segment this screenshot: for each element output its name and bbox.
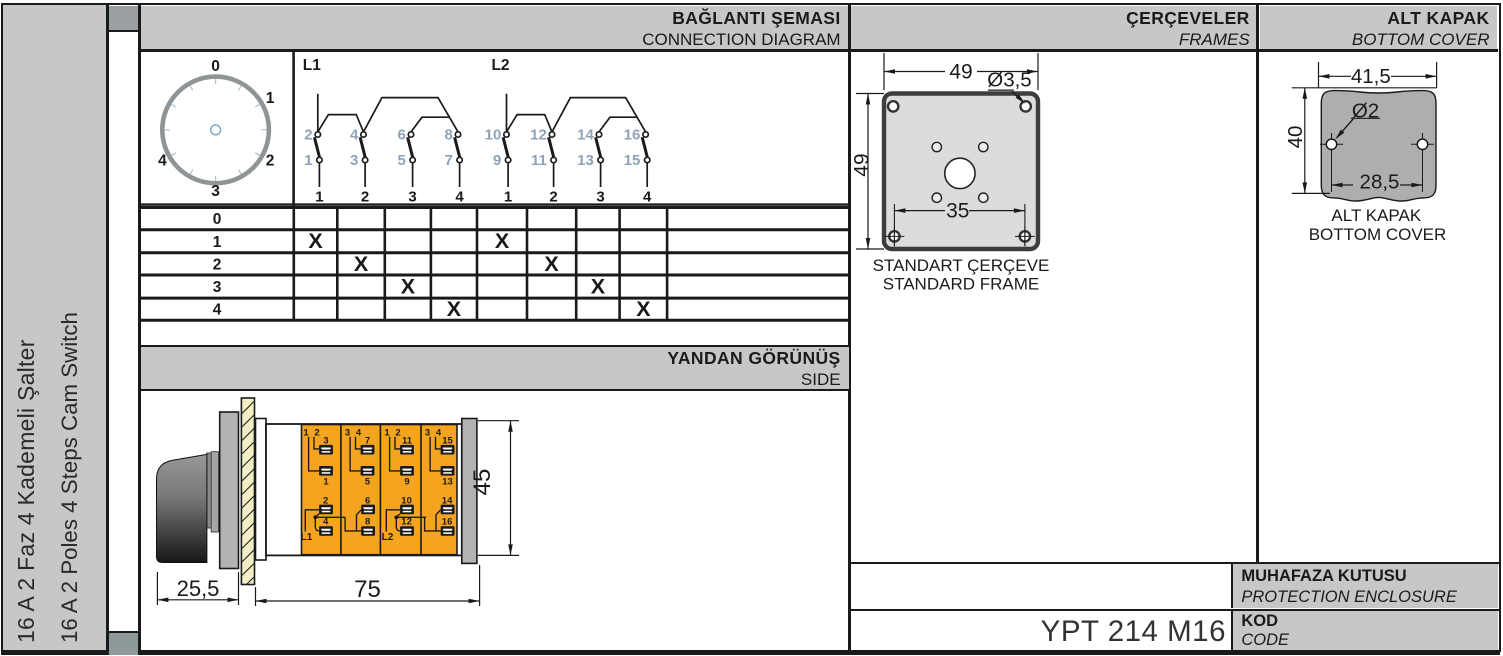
svg-text:Ø2: Ø2 (1352, 100, 1379, 123)
svg-text:16: 16 (442, 517, 453, 528)
svg-text:9: 9 (404, 476, 409, 487)
svg-text:2: 2 (314, 428, 319, 439)
svg-text:X: X (447, 297, 462, 321)
svg-text:L2: L2 (382, 532, 394, 543)
svg-text:X: X (401, 275, 416, 299)
svg-text:1: 1 (323, 476, 329, 487)
svg-text:4: 4 (436, 428, 442, 439)
svg-text:49: 49 (851, 153, 874, 176)
svg-text:4: 4 (213, 302, 222, 319)
svg-text:14: 14 (577, 127, 594, 144)
svg-text:4: 4 (158, 152, 167, 169)
svg-text:STANDARD FRAME: STANDARD FRAME (883, 275, 1039, 294)
svg-text:15: 15 (624, 152, 641, 169)
svg-text:8: 8 (444, 127, 452, 144)
svg-text:L1: L1 (303, 57, 321, 74)
svg-text:12: 12 (401, 517, 412, 528)
svg-text:45: 45 (469, 469, 496, 496)
svg-text:STANDART ÇERÇEVE: STANDART ÇERÇEVE (873, 256, 1050, 275)
svg-text:8: 8 (365, 517, 370, 528)
svg-text:2: 2 (304, 127, 312, 144)
svg-text:L2: L2 (491, 57, 509, 74)
svg-text:3: 3 (345, 428, 350, 439)
svg-text:X: X (495, 229, 510, 253)
svg-text:X: X (544, 252, 559, 276)
svg-text:9: 9 (493, 152, 501, 169)
svg-text:Ø3,5: Ø3,5 (987, 69, 1031, 92)
svg-text:5: 5 (397, 152, 405, 169)
svg-text:25,5: 25,5 (177, 576, 220, 601)
svg-text:L1: L1 (301, 532, 313, 543)
svg-text:5: 5 (365, 476, 371, 487)
svg-text:4: 4 (356, 428, 362, 439)
svg-text:X: X (591, 275, 606, 299)
svg-text:1: 1 (304, 152, 312, 169)
svg-text:75: 75 (354, 576, 381, 603)
svg-text:16: 16 (624, 127, 641, 144)
svg-text:11: 11 (531, 152, 547, 169)
svg-text:1: 1 (266, 90, 275, 107)
svg-text:6: 6 (397, 127, 405, 144)
svg-text:7: 7 (444, 152, 452, 169)
svg-text:X: X (308, 229, 323, 253)
svg-text:3: 3 (213, 279, 222, 296)
svg-text:13: 13 (577, 152, 594, 169)
svg-text:2: 2 (213, 256, 222, 273)
svg-text:3: 3 (350, 152, 358, 169)
svg-text:2: 2 (395, 428, 400, 439)
svg-text:2: 2 (266, 152, 275, 169)
svg-text:ALT KAPAK: ALT KAPAK (1331, 206, 1421, 225)
svg-text:28,5: 28,5 (1360, 171, 1400, 194)
svg-text:0: 0 (211, 58, 220, 75)
svg-text:41,5: 41,5 (1351, 65, 1391, 88)
svg-text:35: 35 (946, 200, 969, 223)
svg-text:0: 0 (213, 211, 222, 228)
svg-text:4: 4 (323, 517, 329, 528)
svg-text:X: X (354, 252, 369, 276)
svg-text:3: 3 (211, 183, 220, 200)
svg-text:4: 4 (350, 127, 359, 144)
svg-text:10: 10 (485, 127, 502, 144)
svg-text:1: 1 (213, 234, 222, 251)
svg-text:49: 49 (949, 61, 972, 84)
svg-text:13: 13 (442, 476, 453, 487)
svg-text:X: X (636, 297, 651, 321)
svg-text:3: 3 (425, 428, 430, 439)
svg-text:12: 12 (530, 127, 547, 144)
svg-text:BOTTOM COVER: BOTTOM COVER (1309, 225, 1447, 244)
svg-text:40: 40 (1284, 126, 1307, 149)
